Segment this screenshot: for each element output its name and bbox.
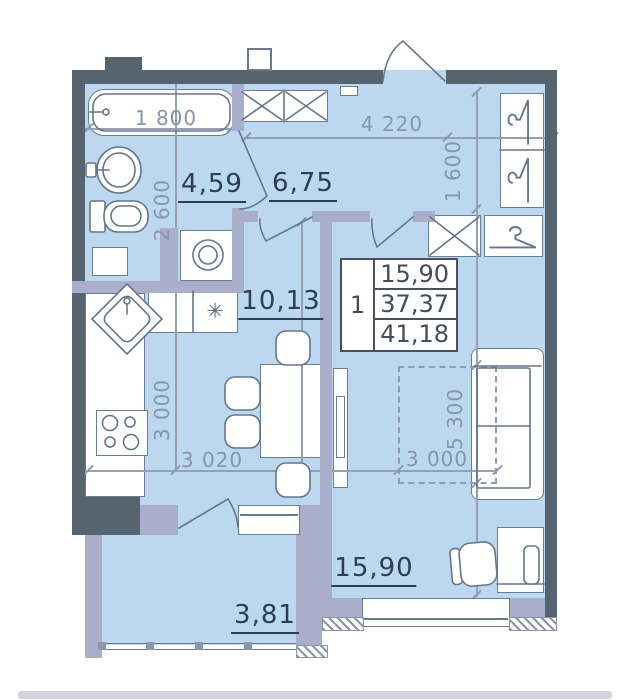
- wall-bath-bottom: [72, 281, 242, 293]
- dim-kitchen-width: 3 020: [181, 448, 243, 472]
- wall-niche: [340, 86, 358, 96]
- tv-screen: [336, 396, 345, 458]
- dim-line-hall: [244, 137, 556, 139]
- wardrobe-box: [428, 215, 481, 257]
- dim-bathtub-length: 1 800: [135, 106, 197, 130]
- dim-living-width: 3 000: [406, 447, 468, 471]
- balcony-window-frame-line: [240, 514, 298, 516]
- dim-closet-depth: 1 600: [441, 140, 465, 202]
- bath-cabinet: [92, 247, 128, 276]
- dim-kitchen-depth: 3 000: [150, 379, 174, 441]
- wall-bath-right-top: [232, 84, 244, 131]
- hallway-area-label: 6,75: [269, 168, 337, 202]
- living-window: [362, 598, 510, 627]
- dining-table: [260, 364, 322, 458]
- stamp-living-area: 15,90: [375, 260, 456, 290]
- stove: [96, 410, 148, 456]
- dim-line-vert-kitchen-right: [301, 222, 303, 471]
- cropped-bottom-band: [18, 691, 612, 699]
- floor-plan: 1 800 2 600 4 220 1 600 3 000 3 020 3 00…: [0, 0, 629, 700]
- apartment-stamp-table: 1 15,90 37,37 41,18: [340, 258, 458, 352]
- insulation-hatch-right: [509, 617, 557, 631]
- desk: [497, 527, 544, 593]
- wall-hall-c: [413, 211, 435, 222]
- living-area-label: 15,90: [331, 553, 416, 587]
- stamp-rooms-count: 1: [342, 260, 375, 350]
- dim-bathroom-depth: 2 600: [150, 179, 174, 241]
- entrance-threshold: [383, 70, 446, 84]
- wall-bottom-right-seg: [510, 598, 545, 617]
- wall-balcony-top-right: [296, 505, 332, 535]
- kitchen-counter-top: [148, 290, 238, 333]
- wall-kitchen-block: [85, 497, 140, 535]
- living-window-frame-line: [364, 618, 508, 620]
- dim-line-vert-living: [476, 92, 478, 597]
- wall-balcony-left: [85, 535, 102, 658]
- balcony-window: [238, 505, 300, 535]
- kitchen-counter-left: [85, 293, 145, 497]
- closet: [500, 93, 544, 208]
- wall-bottom-left-seg: [318, 598, 362, 617]
- stamp-apartment-area: 37,37: [375, 290, 456, 320]
- kitchen-area-label: 10,13: [238, 286, 323, 320]
- entry-wardrobe: [240, 90, 328, 122]
- dim-living-depth: 5 300: [443, 388, 467, 450]
- wall-hall-a: [242, 211, 258, 222]
- wall-top-right: [446, 70, 557, 84]
- wall-left: [72, 70, 85, 535]
- bathroom-area-label: 4,59: [178, 169, 246, 203]
- wall-top-pier: [105, 57, 142, 71]
- stamp-total-area: 41,18: [375, 320, 456, 350]
- wall-balcony-top-left: [140, 505, 178, 535]
- hanger-box: [484, 215, 543, 257]
- wall-top-left: [72, 70, 383, 84]
- balcony-area-label: 3,81: [231, 600, 299, 634]
- dim-hall-width: 4 220: [361, 112, 423, 136]
- wall-right: [545, 82, 557, 628]
- insulation-hatch-left: [322, 617, 364, 631]
- washing-machine: [180, 230, 236, 281]
- insulation-hatch-balcony: [296, 645, 328, 658]
- chimney-shaft: [247, 48, 272, 71]
- hob-icon: ✳: [206, 299, 224, 323]
- wall-balcony-right-pier: [296, 535, 322, 656]
